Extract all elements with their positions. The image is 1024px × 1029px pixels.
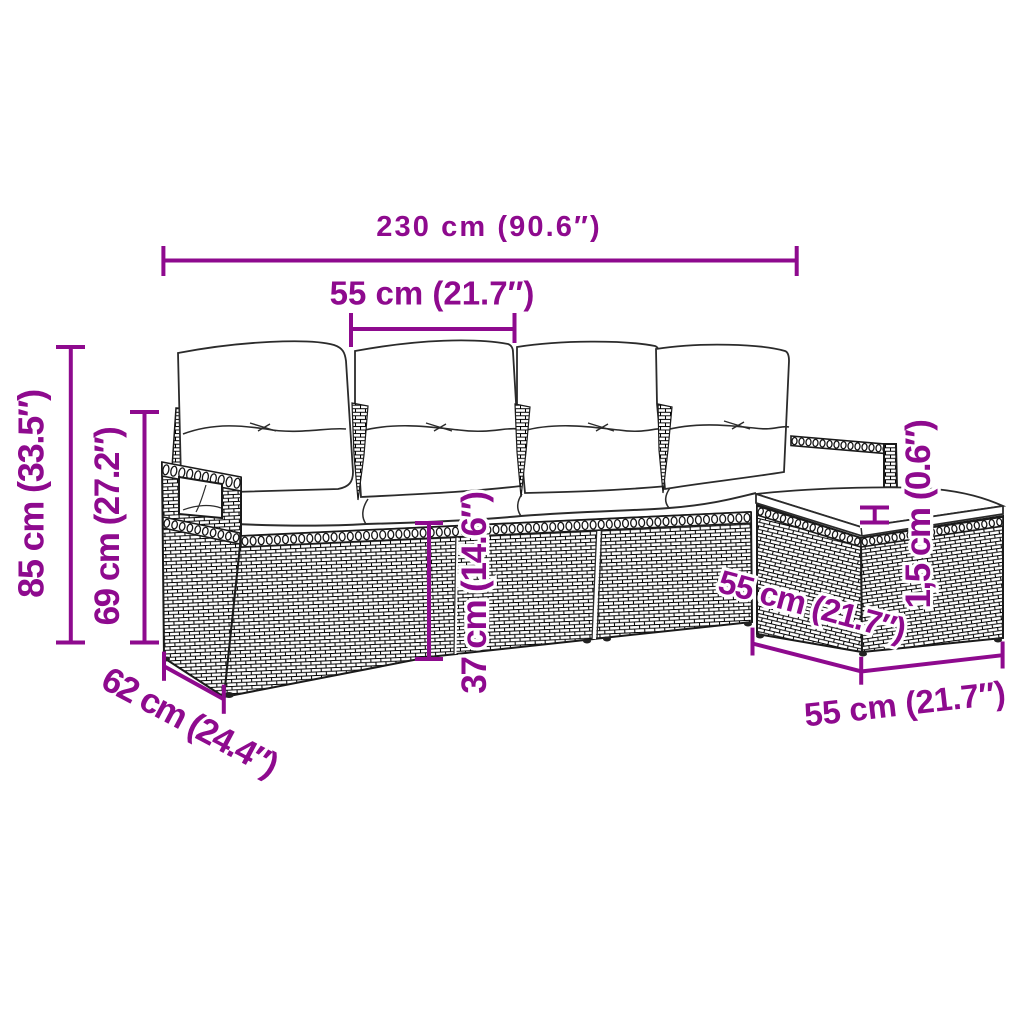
svg-text:1,5 cm (0.6″): 1,5 cm (0.6″) bbox=[899, 421, 938, 609]
svg-text:69 cm (27.2″): 69 cm (27.2″) bbox=[88, 428, 127, 626]
svg-text:230 cm (90.6″): 230 cm (90.6″) bbox=[376, 211, 601, 243]
svg-text:85 cm (33.5″): 85 cm (33.5″) bbox=[11, 390, 52, 598]
svg-text:55 cm (21.7″): 55 cm (21.7″) bbox=[330, 275, 535, 312]
svg-text:37 cm (14.6″): 37 cm (14.6″) bbox=[455, 492, 494, 694]
